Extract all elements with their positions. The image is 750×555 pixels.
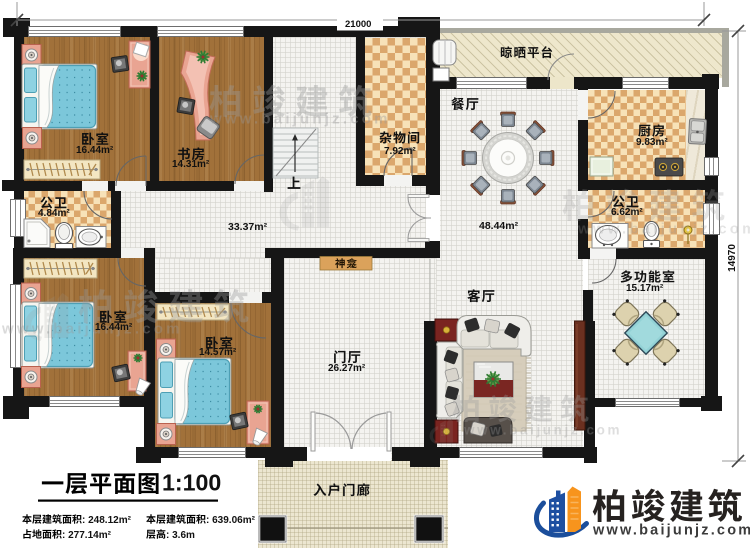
svg-text:14.31m²: 14.31m² xyxy=(172,159,210,170)
svg-text:6.62m²: 6.62m² xyxy=(611,207,643,218)
svg-text:www.baijunjz.com: www.baijunjz.com xyxy=(209,111,391,128)
svg-text:1:100: 1:100 xyxy=(162,470,221,496)
svg-text:15.17m²: 15.17m² xyxy=(626,283,664,294)
svg-text:www.baijunjz.com: www.baijunjz.com xyxy=(1,321,183,338)
svg-text:7.92m²: 7.92m² xyxy=(384,146,416,157)
svg-text:9.83m²: 9.83m² xyxy=(636,137,668,148)
svg-text:: 639.06m²: : 639.06m² xyxy=(206,515,256,526)
svg-text:www.baijunjz.com: www.baijunjz.com xyxy=(577,221,750,238)
svg-text:www.baijunjz.com: www.baijunjz.com xyxy=(463,423,622,438)
svg-text:33.37m²: 33.37m² xyxy=(228,221,268,233)
svg-text:16.44m²: 16.44m² xyxy=(76,145,114,156)
svg-text:www.baijunjz.com: www.baijunjz.com xyxy=(592,522,750,538)
svg-text:14970: 14970 xyxy=(727,244,738,272)
svg-text:21000: 21000 xyxy=(345,19,371,30)
svg-text:48.44m²: 48.44m² xyxy=(479,220,519,232)
svg-text:: 248.12m²: : 248.12m² xyxy=(82,515,132,526)
svg-text:: 3.6m: : 3.6m xyxy=(166,530,195,541)
svg-text:4.84m²: 4.84m² xyxy=(38,208,70,219)
svg-text:: 277.14m²: : 277.14m² xyxy=(62,530,112,541)
svg-text:16.44m²: 16.44m² xyxy=(95,322,133,333)
svg-text:14.57m²: 14.57m² xyxy=(199,347,237,358)
svg-text:26.27m²: 26.27m² xyxy=(328,363,366,374)
